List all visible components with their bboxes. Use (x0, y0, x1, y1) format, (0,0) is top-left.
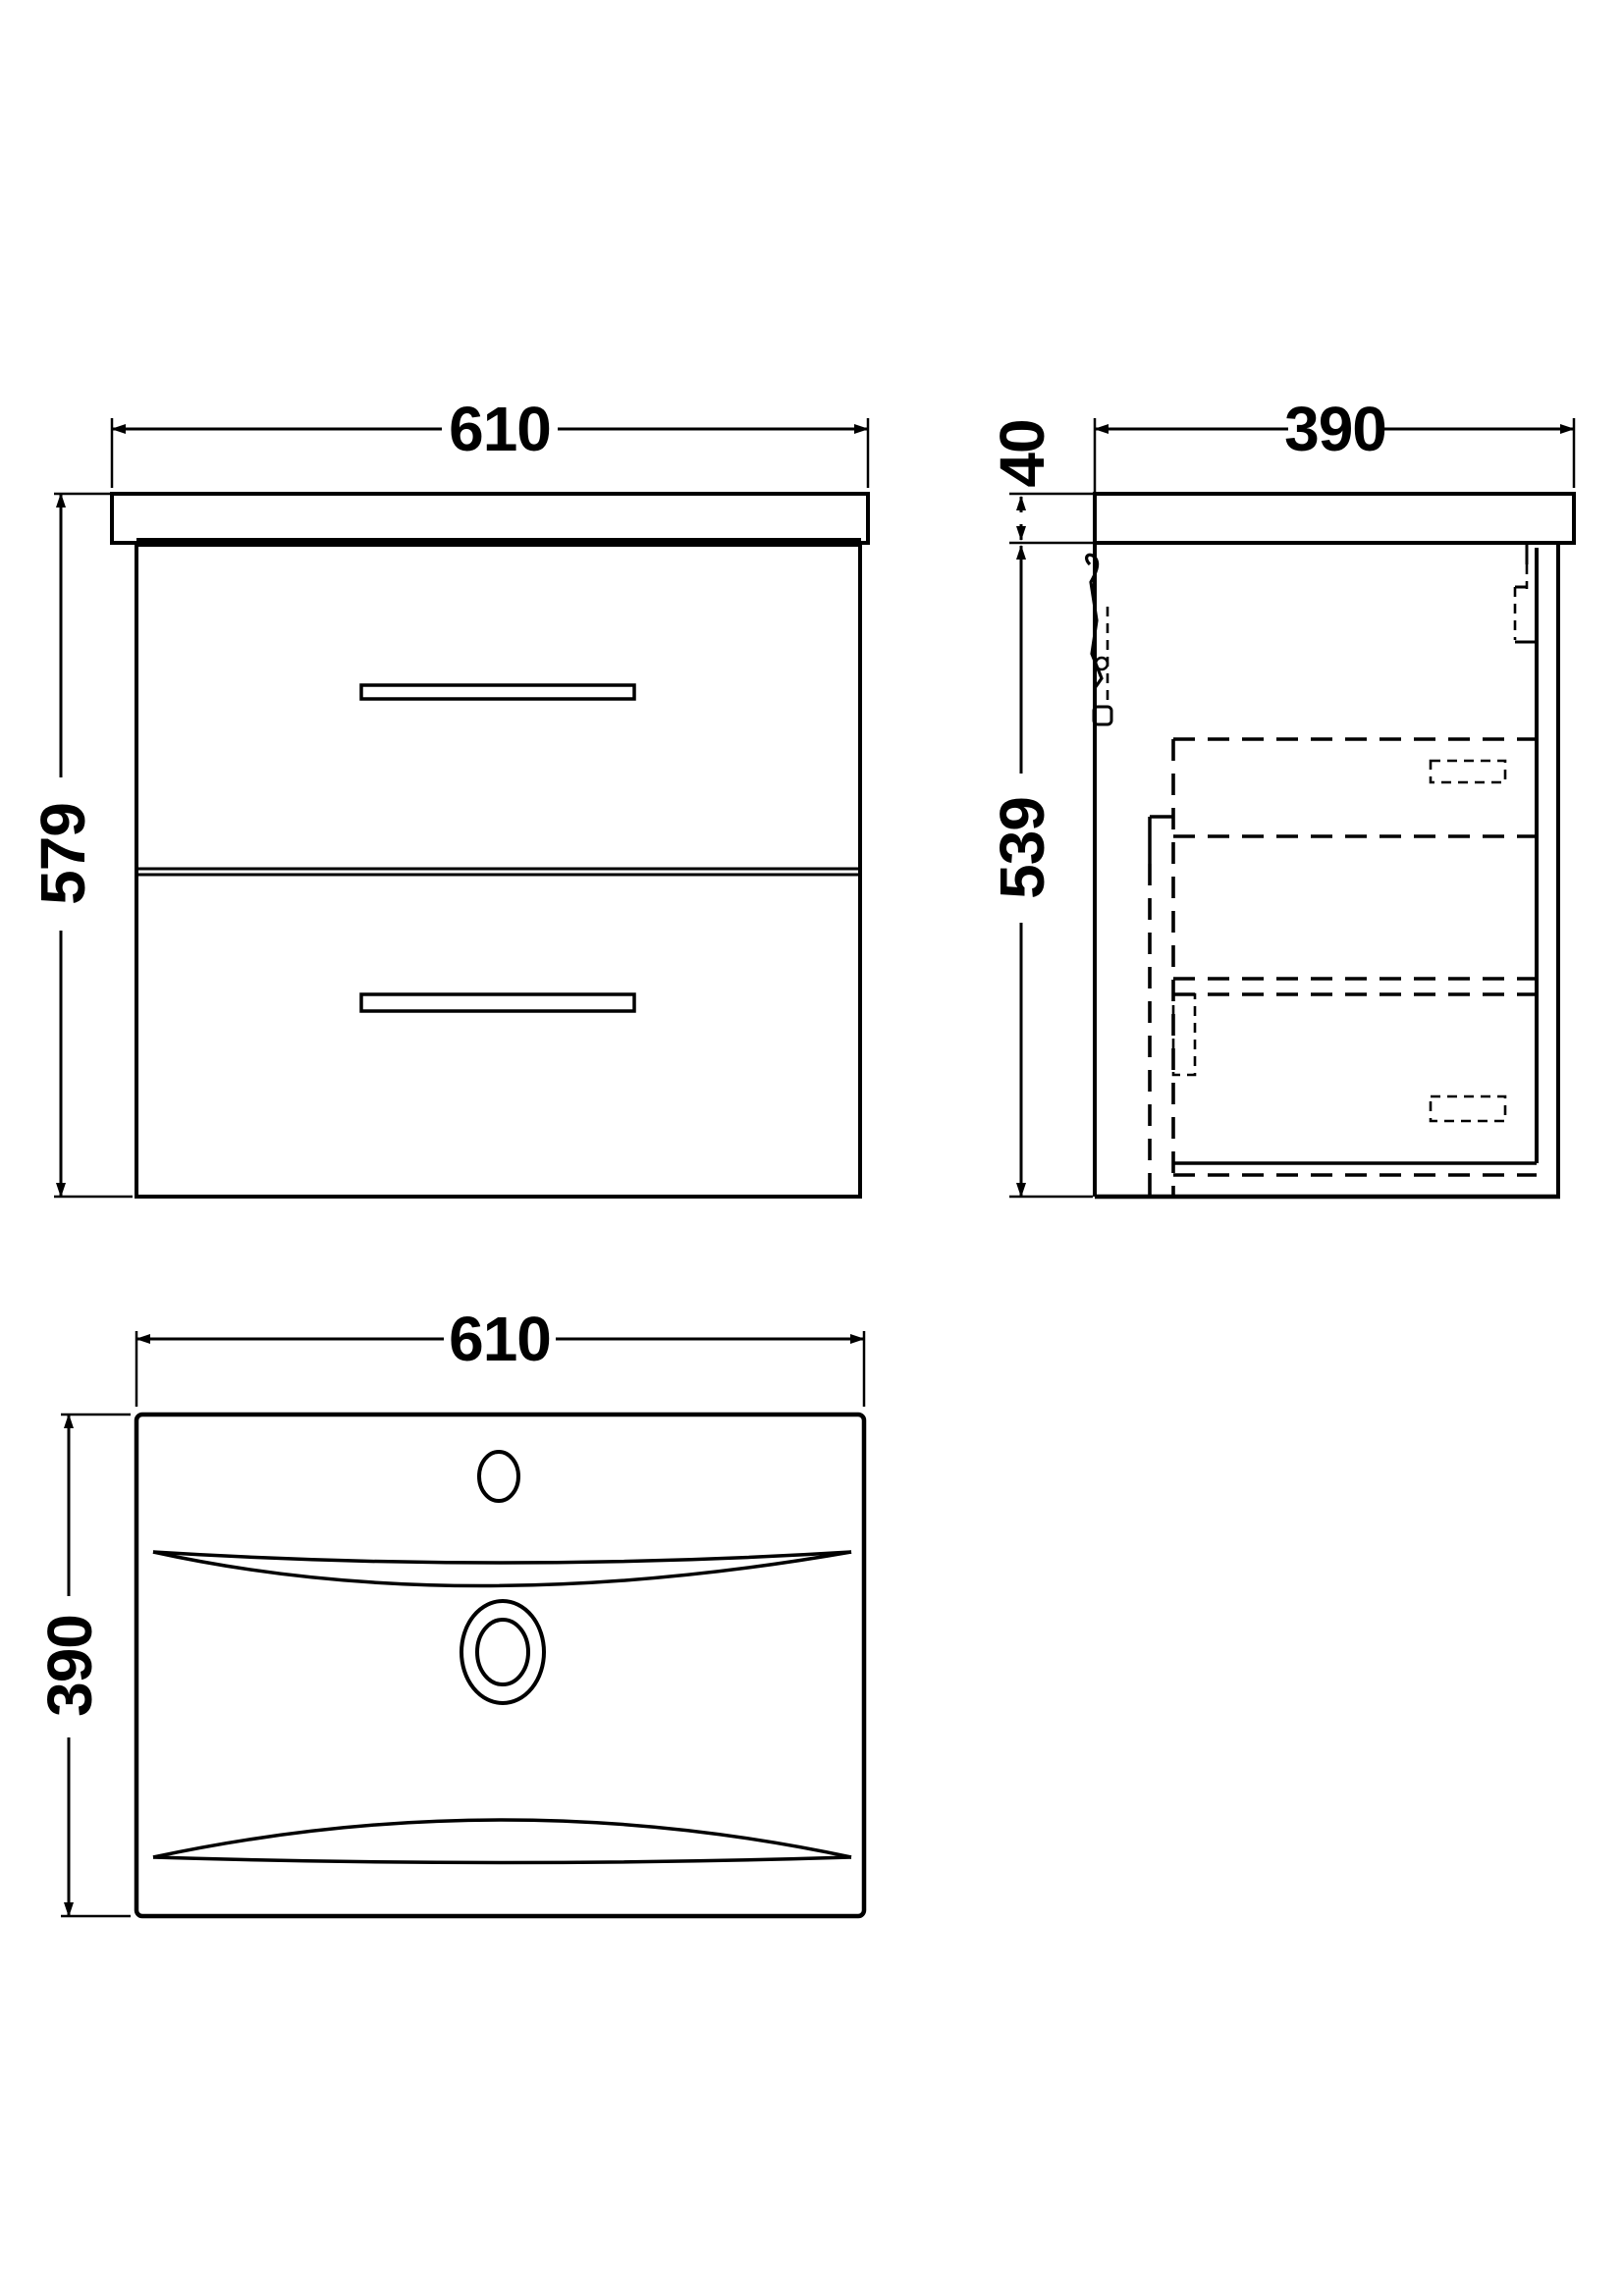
front-worktop (112, 494, 868, 543)
worktop-thickness-label: 40 (987, 419, 1057, 487)
side-worktop (1095, 494, 1574, 543)
page-background (0, 0, 1623, 2296)
side-depth-label: 390 (1284, 394, 1386, 464)
plan-width-label: 610 (449, 1304, 551, 1374)
front-width-label: 610 (449, 394, 551, 464)
top-drawer-handle (361, 685, 634, 699)
side-height-label: 539 (987, 797, 1057, 899)
bottom-drawer-handle (361, 994, 634, 1011)
technical-drawing-canvas: 610 579 390 (0, 0, 1623, 2296)
front-height-label: 579 (27, 803, 98, 905)
plan-depth-label: 390 (34, 1615, 105, 1717)
